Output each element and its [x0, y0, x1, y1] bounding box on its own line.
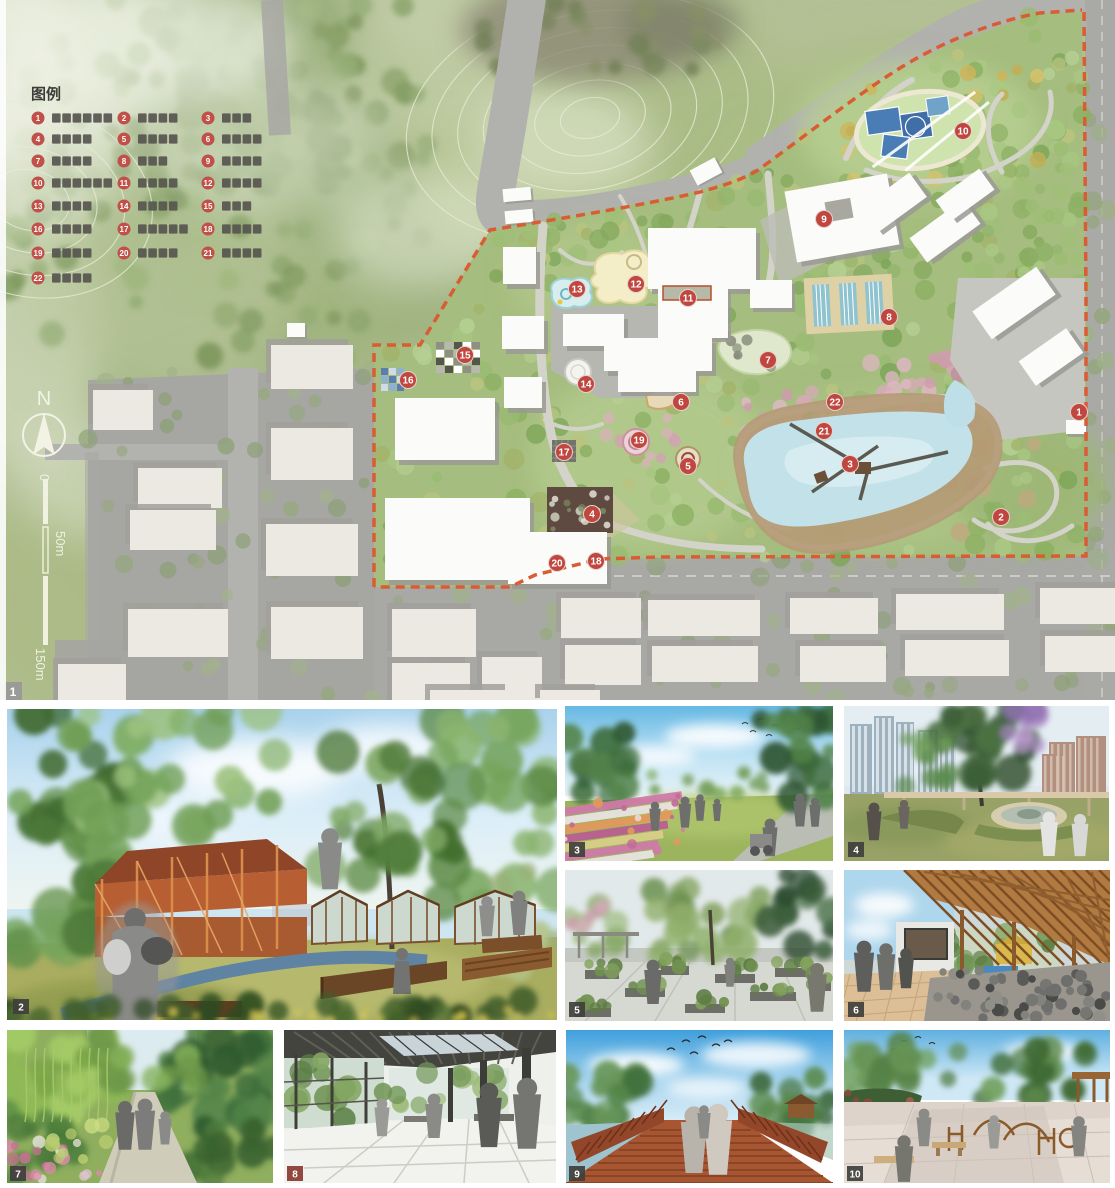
- svg-text:15: 15: [204, 202, 213, 211]
- svg-text:4: 4: [36, 135, 41, 144]
- svg-text:3: 3: [206, 114, 211, 123]
- svg-text:3: 3: [847, 460, 853, 471]
- svg-text:12: 12: [630, 280, 642, 291]
- svg-text:5: 5: [685, 462, 691, 473]
- svg-text:6: 6: [853, 1006, 859, 1017]
- svg-text:7: 7: [765, 356, 771, 367]
- svg-text:11: 11: [120, 179, 129, 188]
- svg-text:6: 6: [678, 398, 684, 409]
- svg-text:1: 1: [1076, 408, 1082, 419]
- svg-text:150m: 150m: [33, 648, 48, 681]
- svg-text:9: 9: [206, 157, 211, 166]
- svg-text:2: 2: [122, 114, 127, 123]
- svg-text:14: 14: [120, 202, 129, 211]
- svg-text:17: 17: [558, 448, 570, 459]
- svg-text:19: 19: [633, 436, 645, 447]
- svg-text:50m: 50m: [53, 531, 68, 556]
- svg-text:2: 2: [998, 513, 1004, 524]
- svg-text:20: 20: [120, 249, 129, 258]
- svg-text:18: 18: [590, 557, 602, 568]
- svg-text:1: 1: [36, 114, 41, 123]
- svg-text:8: 8: [292, 1170, 298, 1181]
- svg-text:3: 3: [574, 846, 580, 857]
- svg-text:12: 12: [204, 179, 213, 188]
- svg-text:22: 22: [829, 398, 841, 409]
- svg-text:16: 16: [402, 376, 414, 387]
- svg-text:22: 22: [34, 274, 43, 283]
- svg-text:19: 19: [34, 249, 43, 258]
- svg-text:9: 9: [821, 215, 827, 226]
- svg-text:9: 9: [574, 1170, 580, 1181]
- svg-text:0: 0: [37, 474, 52, 481]
- svg-text:4: 4: [853, 846, 859, 857]
- svg-text:21: 21: [204, 249, 213, 258]
- svg-text:5: 5: [574, 1006, 580, 1017]
- svg-text:17: 17: [120, 225, 129, 234]
- svg-text:图例: 图例: [31, 85, 61, 103]
- svg-text:21: 21: [818, 427, 830, 438]
- svg-text:20: 20: [551, 559, 563, 570]
- svg-text:14: 14: [580, 380, 592, 391]
- svg-text:13: 13: [34, 202, 43, 211]
- svg-text:6: 6: [206, 135, 211, 144]
- svg-text:8: 8: [122, 157, 127, 166]
- svg-text:10: 10: [34, 179, 43, 188]
- svg-text:4: 4: [589, 510, 595, 521]
- svg-text:13: 13: [571, 285, 583, 296]
- svg-text:15: 15: [459, 351, 471, 362]
- svg-text:7: 7: [15, 1170, 21, 1181]
- svg-text:5: 5: [122, 135, 127, 144]
- svg-text:1: 1: [10, 685, 17, 699]
- svg-text:18: 18: [204, 225, 213, 234]
- svg-text:16: 16: [34, 225, 43, 234]
- svg-text:7: 7: [36, 157, 41, 166]
- svg-text:2: 2: [18, 1003, 24, 1014]
- svg-text:11: 11: [683, 294, 694, 305]
- svg-text:10: 10: [957, 127, 969, 138]
- svg-text:10: 10: [849, 1170, 861, 1181]
- svg-text:8: 8: [886, 313, 892, 324]
- svg-text:N: N: [37, 388, 51, 410]
